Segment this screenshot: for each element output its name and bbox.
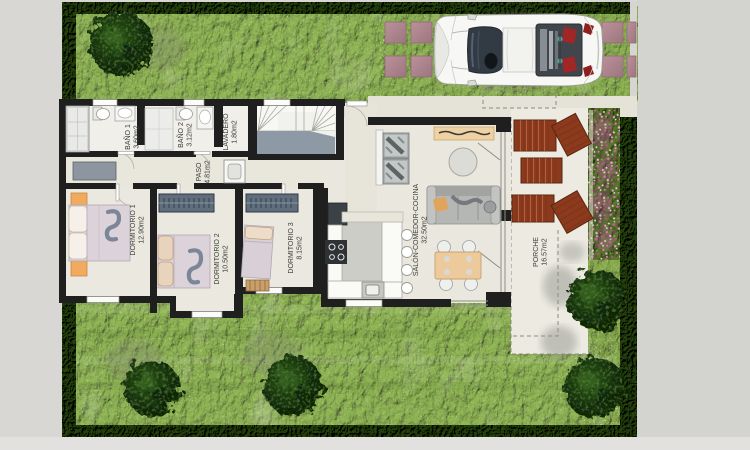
svg-text:PASO4.81m2: PASO4.81m2 bbox=[196, 160, 212, 183]
svg-text:PORCHE16.57m2: PORCHE16.57m2 bbox=[533, 237, 549, 267]
svg-text:BAÑO 13.60m2: BAÑO 13.60m2 bbox=[123, 124, 141, 150]
svg-text:BAÑO 23.12m2: BAÑO 23.12m2 bbox=[176, 122, 194, 148]
